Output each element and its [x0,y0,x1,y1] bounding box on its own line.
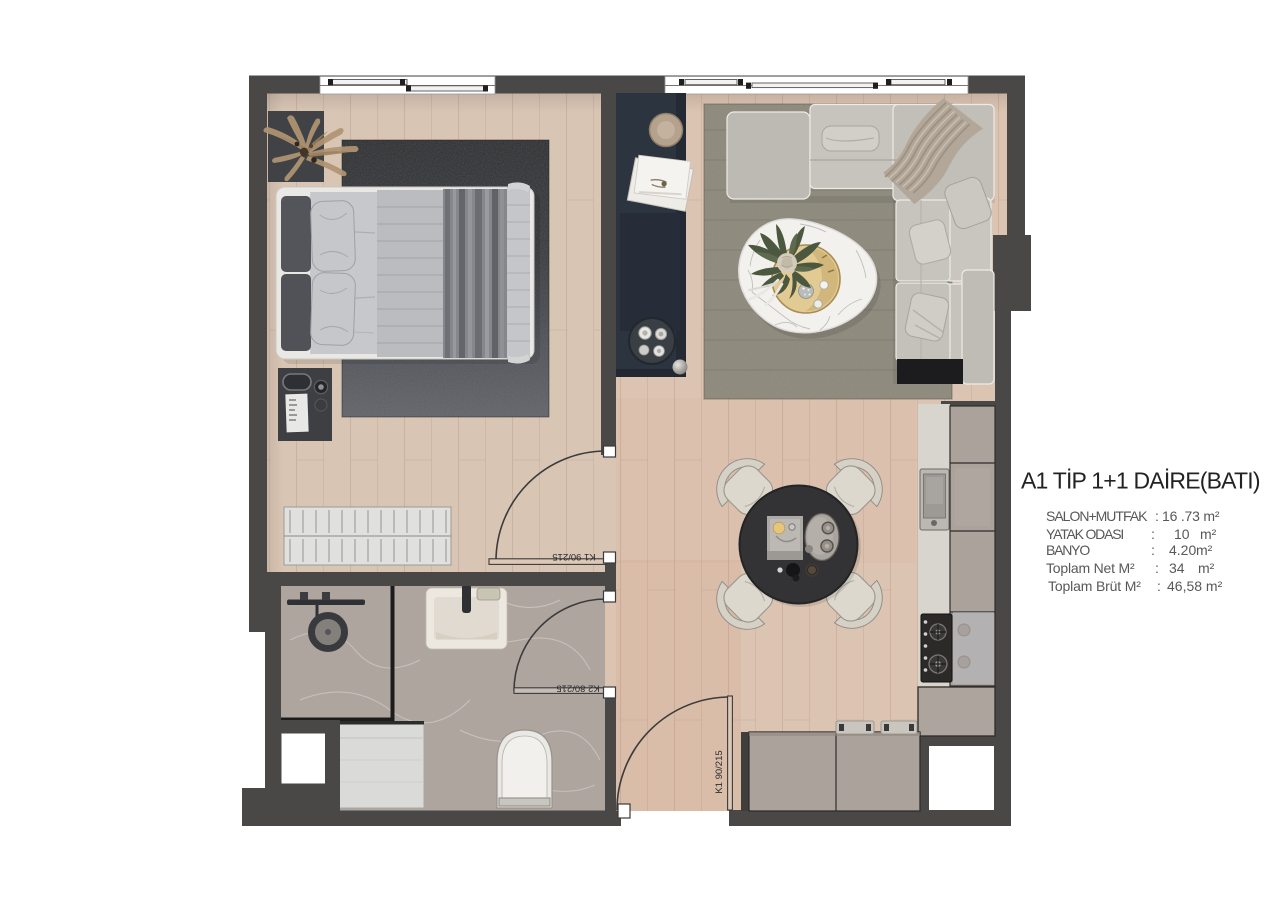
svg-text::: : [1151,526,1155,542]
svg-text:SALON+MUTFAK: SALON+MUTFAK [1046,508,1148,524]
svg-text:10: 10 [1174,526,1190,542]
svg-text:m²: m² [1198,560,1215,576]
svg-text:A1 TİP 1+1 DAİRE(BATI): A1 TİP 1+1 DAİRE(BATI) [1021,468,1260,494]
svg-text:K2 80/215: K2 80/215 [556,683,599,694]
svg-text:Toplam Brüt M²: Toplam Brüt M² [1048,578,1141,594]
svg-text:m²: m² [1196,542,1213,558]
svg-text:BANYO: BANYO [1046,542,1090,558]
svg-text::: : [1155,508,1159,524]
svg-text::: : [1151,542,1155,558]
svg-text:m²: m² [1200,526,1217,542]
svg-text:YATAK ODASI: YATAK ODASI [1046,526,1123,542]
svg-text:34: 34 [1169,560,1185,576]
svg-text:K1 90/215: K1 90/215 [714,750,725,793]
svg-text::: : [1157,578,1161,594]
svg-text:4.20: 4.20 [1169,542,1196,558]
svg-text:Toplam Net M²: Toplam Net M² [1046,560,1135,576]
svg-text:16 .73 m²: 16 .73 m² [1162,508,1220,524]
svg-text:46,58 m²: 46,58 m² [1167,578,1223,594]
svg-text:K1 90/215: K1 90/215 [552,551,595,562]
svg-text::: : [1155,560,1159,576]
